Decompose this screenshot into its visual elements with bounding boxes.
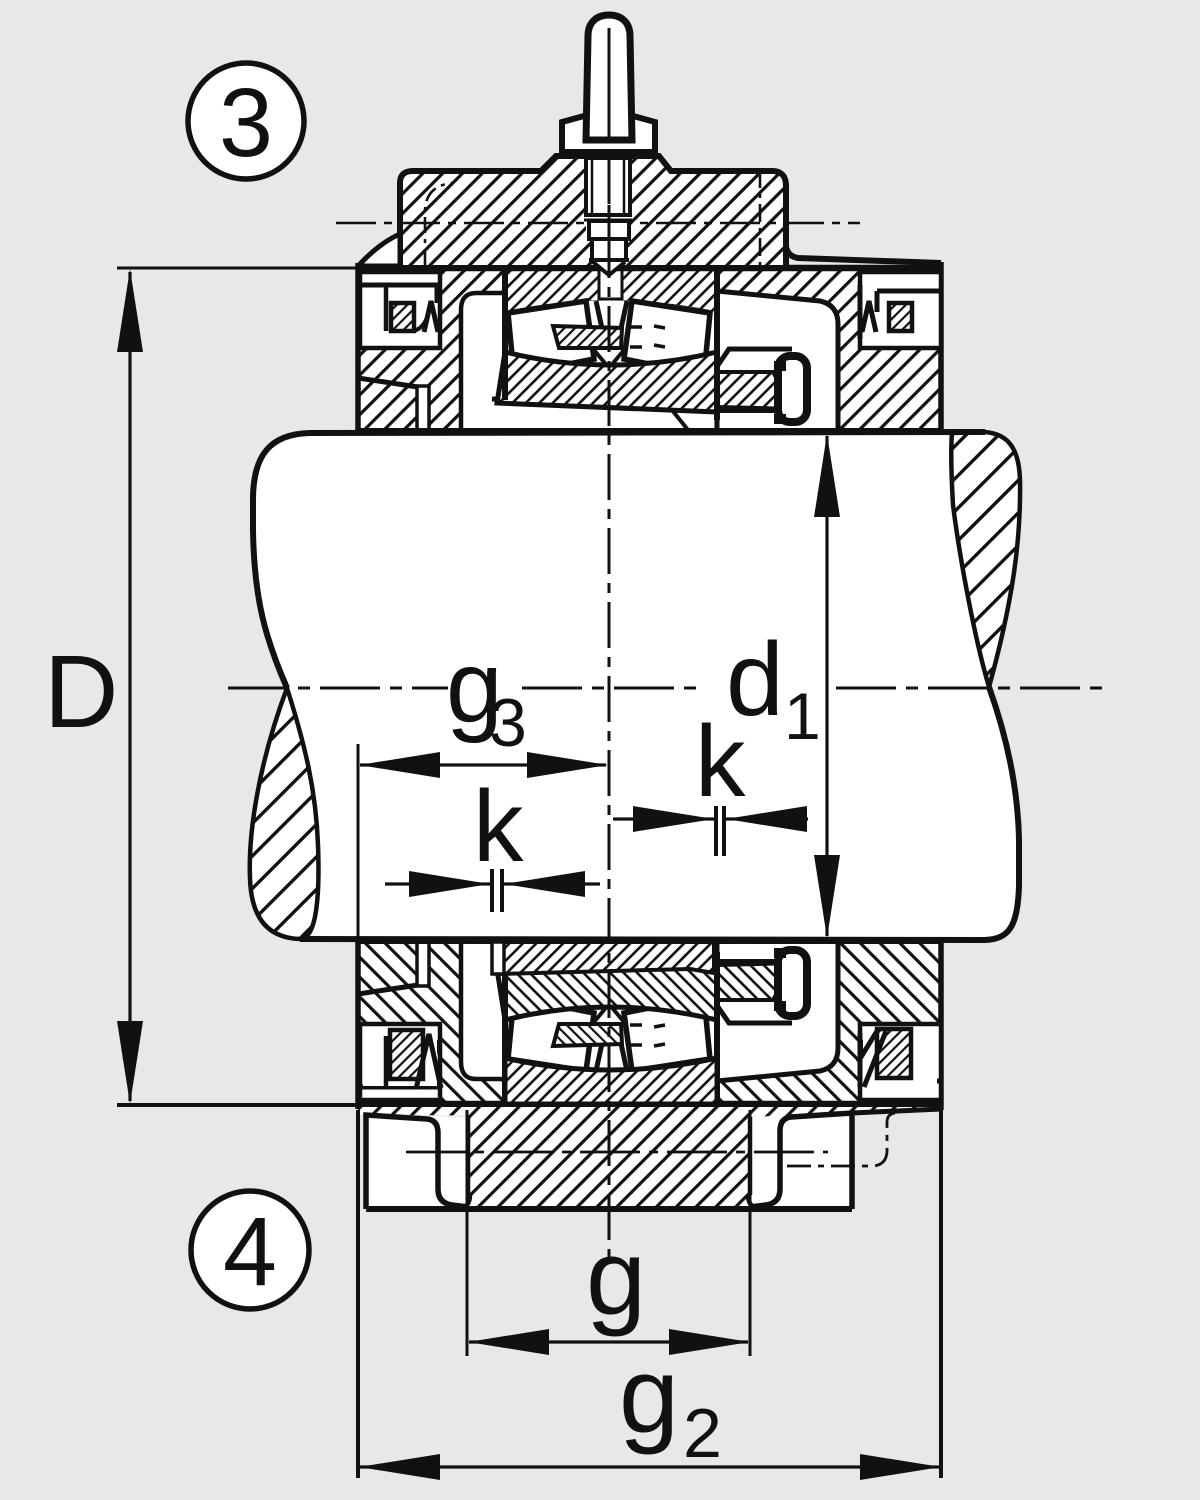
svg-text:D: D: [44, 634, 118, 749]
svg-text:g: g: [586, 1216, 646, 1337]
svg-text:k: k: [695, 706, 746, 818]
svg-text:k: k: [473, 771, 524, 883]
svg-text:4: 4: [223, 1197, 277, 1306]
svg-text:2: 2: [683, 1394, 722, 1472]
svg-text:3: 3: [219, 68, 273, 177]
svg-text:3: 3: [489, 685, 527, 761]
svg-text:g: g: [619, 1334, 679, 1455]
svg-text:1: 1: [784, 679, 821, 753]
